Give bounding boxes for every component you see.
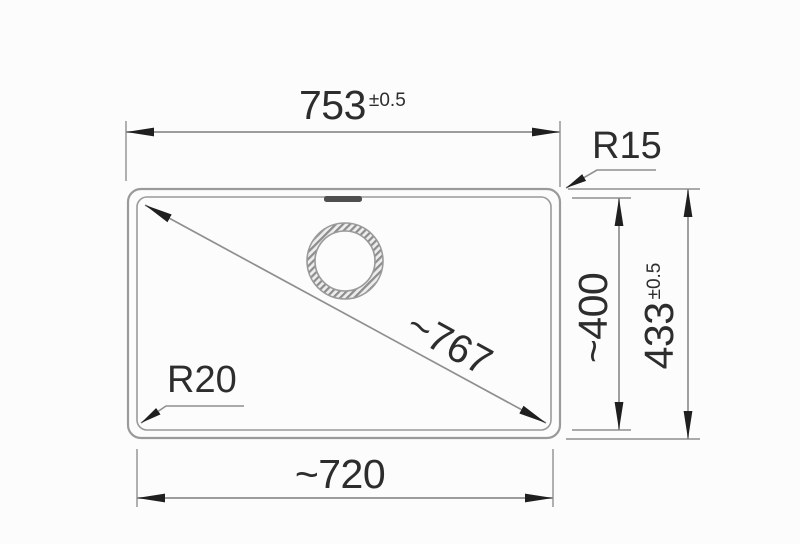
top-width-label: 753±0.5 — [299, 82, 406, 128]
diagonal-label: ~767 — [399, 303, 499, 385]
tap-hole-outer-circle — [307, 223, 383, 299]
inner-height-label: ~400 — [570, 273, 616, 363]
callout-corner-radius-outer: R15 — [566, 125, 662, 188]
drawing-canvas: 753±0.5 ~400 433±0.5 ~720 ~767 R15 R20 — [0, 0, 800, 544]
overflow-slot — [324, 196, 362, 202]
corner-radius-outer-label: R15 — [592, 125, 662, 167]
dimension-inner-height: ~400 — [570, 198, 631, 430]
tap-hole-hatch-ring — [311, 227, 379, 295]
dimension-drawing: 753±0.5 ~400 433±0.5 ~720 ~767 R15 R20 — [0, 0, 800, 544]
tap-hole-inner-circle — [315, 231, 375, 291]
dimension-inner-width: ~720 — [137, 449, 553, 507]
inner-width-label: ~720 — [295, 451, 385, 497]
leader-line-r20 — [141, 406, 244, 423]
leader-line-r15 — [566, 170, 656, 188]
callout-corner-radius-inner: R20 — [141, 359, 244, 423]
outer-height-label: 433±0.5 — [636, 263, 682, 370]
corner-radius-inner-label: R20 — [167, 359, 237, 401]
dimension-top-width: 753±0.5 — [126, 82, 560, 187]
tap-hole — [307, 223, 383, 299]
